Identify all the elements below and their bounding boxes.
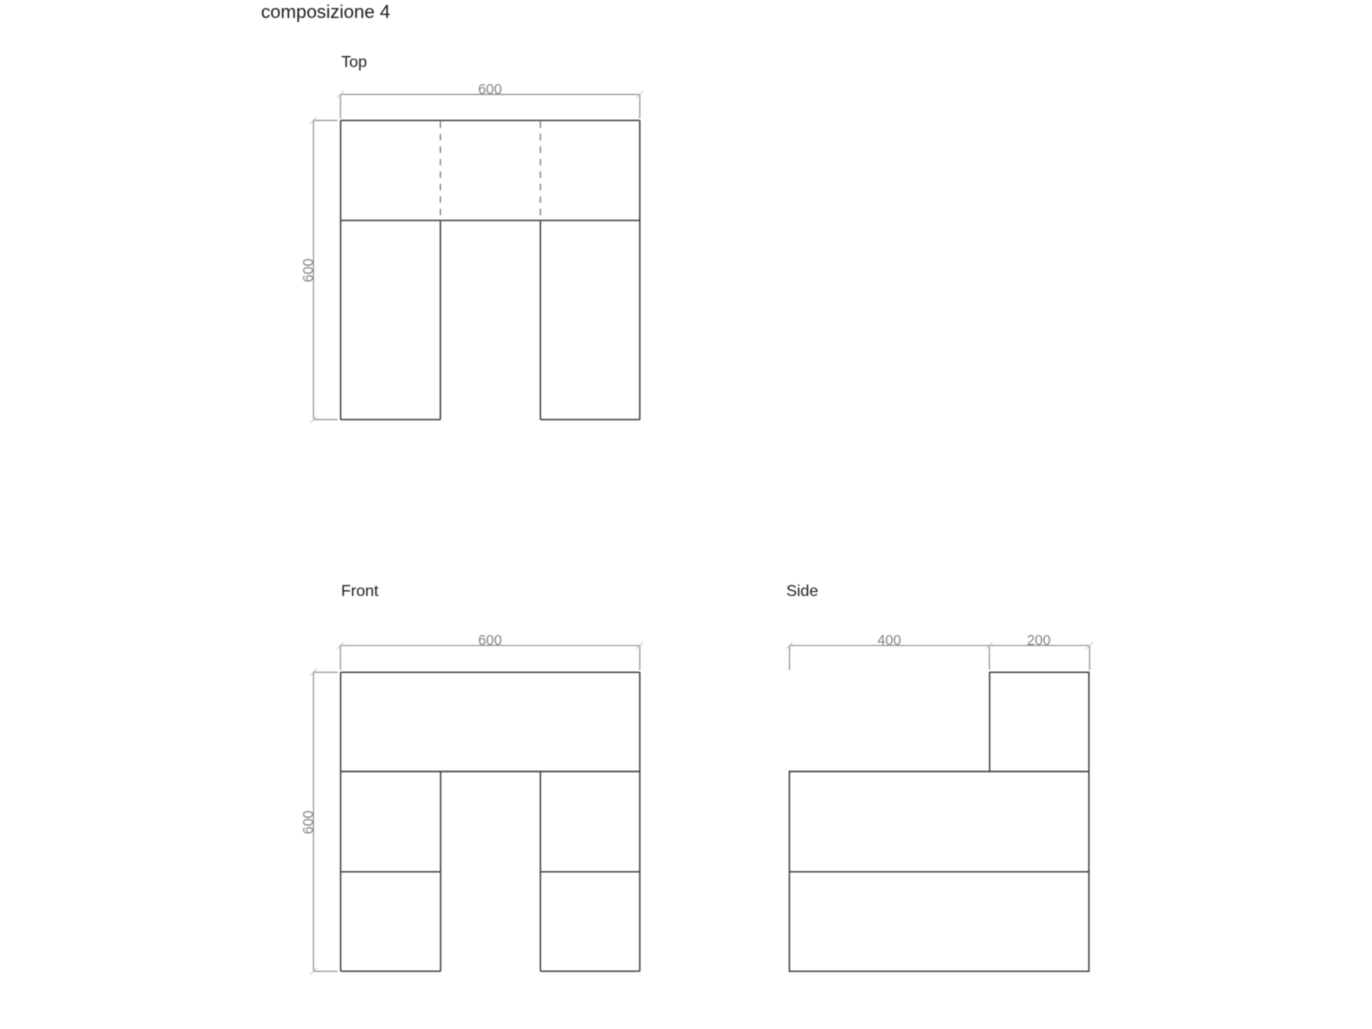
svg-text:600: 600	[478, 633, 502, 649]
svg-text:Top: Top	[341, 54, 367, 71]
svg-text:Front: Front	[341, 583, 379, 600]
svg-text:600: 600	[301, 810, 317, 834]
svg-text:200: 200	[1027, 633, 1051, 649]
svg-text:Side: Side	[786, 583, 818, 600]
svg-text:600: 600	[301, 258, 317, 282]
svg-text:400: 400	[877, 633, 901, 649]
svg-text:600: 600	[478, 82, 502, 98]
svg-text:composizione 4: composizione 4	[261, 1, 390, 22]
